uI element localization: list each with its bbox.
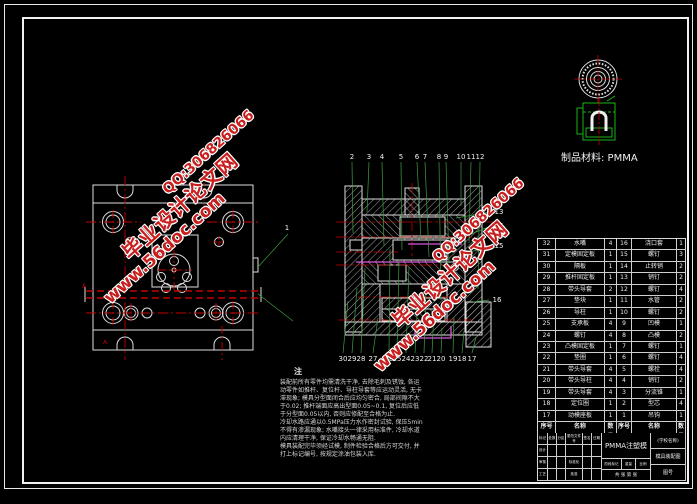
bom-cell: 13 (617, 273, 632, 284)
bom-cell: 22 (538, 353, 556, 364)
bom-cell: 25 (538, 319, 556, 330)
bom-cell: 28 (538, 285, 556, 296)
part-number-label: 30 (339, 355, 348, 363)
bom-cell: 32 (538, 239, 556, 250)
note-line: 于分型面0.05以内, 否则应修配至合格为止. (280, 411, 432, 419)
school-name-cell: (学校名称) (651, 433, 686, 449)
bom-cell: 4 (677, 399, 685, 410)
bom-cell: 4 (677, 285, 685, 296)
bom-cell: 凸模 (632, 331, 677, 342)
bom-cell: 11 (617, 296, 632, 307)
scale-cell: 比例 (636, 459, 651, 470)
revision-grid-cell (557, 457, 566, 469)
bom-cell: 支承板 (556, 319, 605, 330)
bom-cell: 销钉 (632, 273, 677, 284)
bom-cell: 型芯 (632, 399, 677, 410)
bom-cell: 19 (538, 388, 556, 399)
notes-title: 注 (294, 366, 432, 377)
bom-cell: 2 (605, 285, 617, 296)
bom-cell: 1 (605, 411, 617, 422)
part-number-label: A (103, 339, 108, 346)
revision-grid-cell: 更改文件号 (566, 433, 583, 445)
leader-line (258, 234, 288, 267)
bom-row: 30隔板114止转销2 (538, 262, 685, 273)
revision-grid-cell (592, 457, 602, 469)
part-number-label: 15 (495, 242, 504, 250)
bom-row: 25支承板49凹模1 (538, 319, 685, 330)
bill-of-materials-table: 32水嘴416浇口套131定模固定板115螺钉330隔板114止转销229推杆固… (537, 238, 686, 435)
part-number-label: 9 (444, 153, 448, 161)
revision-grid-cell: 分区 (557, 433, 566, 445)
drawing-number-cell: 图号 (651, 465, 686, 481)
bom-cell: 带头导套 (556, 388, 605, 399)
bom-cell: 24 (538, 331, 556, 342)
bom-cell: 4 (605, 376, 617, 387)
sheet-info-cell: 共 张 第 张 (602, 470, 651, 481)
bom-cell: 2 (677, 331, 685, 342)
cad-drawing-sheet: 2345678910111230292827262524232221201918… (0, 0, 697, 504)
revision-grid-cell: 日期 (592, 433, 602, 445)
bom-cell: 2 (677, 308, 685, 319)
bom-cell: 15 (617, 250, 632, 261)
bom-row: 24螺钉48凸模2 (538, 331, 685, 342)
bom-cell: 凸模固定板 (556, 342, 605, 353)
note-line: 滞现象; 模具分型面闭合后应均匀密合, 局部间隙不大 (280, 395, 432, 403)
revision-grid-cell (548, 445, 557, 457)
bom-cell: 凹模 (632, 319, 677, 330)
bom-row: 31定模固定板115螺钉3 (538, 250, 685, 261)
bom-cell: 1 (677, 388, 685, 399)
bom-cell: 4 (605, 319, 617, 330)
bom-cell: 4 (677, 353, 685, 364)
bom-cell: 30 (538, 262, 556, 273)
bom-cell: 2 (677, 273, 685, 284)
bom-row: 29推杆固定板113销钉2 (538, 273, 685, 284)
product-part-detail (577, 96, 615, 140)
bom-cell: 1 (605, 262, 617, 273)
bom-cell: 31 (538, 250, 556, 261)
bom-cell: 5 (617, 365, 632, 376)
bom-cell: 10 (617, 308, 632, 319)
bom-cell: 21 (538, 365, 556, 376)
part-number-label: 14 (495, 222, 504, 230)
plan-view-centerlines (86, 172, 260, 360)
bom-cell: 水管 (632, 296, 677, 307)
part-number-label: 25 (393, 355, 402, 363)
bom-cell: 止转销 (632, 262, 677, 273)
bom-cell: 23 (538, 342, 556, 353)
leader-line (258, 294, 293, 321)
bom-cell: 导柱 (556, 308, 605, 319)
bom-cell: 浇口套 (632, 239, 677, 250)
part-number-label: 13 (495, 208, 504, 216)
bom-row: 26导柱110螺钉2 (538, 308, 685, 319)
note-line: 打上标记编号, 按规定涂油包装入库. (280, 451, 432, 459)
revision-grid-cell: 批准 (566, 469, 583, 481)
revision-grid-cell (592, 445, 602, 457)
bom-cell: 4 (617, 376, 632, 387)
note-line: 模具装配完毕须经试模, 制件检验合格后方可交付, 并 (280, 443, 432, 451)
part-number-label: 4 (380, 153, 385, 161)
note-line: 不得有渗漏现象; 水嘴接头一律采用标准件, 冷却水道 (280, 427, 432, 435)
part-number-label: 8 (437, 153, 441, 161)
bom-cell: 4 (677, 365, 685, 376)
bom-cell: 螺钉 (632, 285, 677, 296)
bom-cell: 螺钉 (632, 308, 677, 319)
bom-cell: 1 (605, 399, 617, 410)
revision-grid-cell (557, 445, 566, 457)
note-line: 内应清理干净, 保证冷却水畅通无阻. (280, 435, 432, 443)
bom-cell: 12 (617, 285, 632, 296)
bom-cell: 14 (617, 262, 632, 273)
part-number-label: 19 (449, 355, 458, 363)
bom-cell: 隔板 (556, 262, 605, 273)
bom-cell: 螺栓 (632, 365, 677, 376)
part-number-label: 23 (411, 355, 420, 363)
bom-cell: 螺钉 (556, 331, 605, 342)
bom-cell: 1 (605, 342, 617, 353)
bom-cell: 推杆固定板 (556, 273, 605, 284)
weight-cell: 重量 (622, 459, 636, 470)
bom-row: 20带头导柱44销钉2 (538, 376, 685, 387)
bom-cell: 3 (617, 388, 632, 399)
revision-grid-cell: 处数 (548, 433, 557, 445)
part-number-label: 29 (348, 355, 357, 363)
bom-cell: 1 (605, 296, 617, 307)
revision-grid-cell (583, 457, 592, 469)
bom-cell: 1 (677, 411, 685, 422)
bom-row: 28带头导套212螺钉4 (538, 285, 685, 296)
bom-cell: 4 (605, 388, 617, 399)
note-line: 装配前所有零件均需清洗干净, 去除毛刺及锈蚀, 各运 (280, 379, 432, 387)
part-number-label: 18 (458, 355, 467, 363)
bom-cell: 垫块 (556, 296, 605, 307)
revision-grid-cell: 工艺 (538, 469, 548, 481)
bom-cell: 18 (538, 399, 556, 410)
bom-cell: 2 (677, 376, 685, 387)
bom-cell: 螺钉 (632, 250, 677, 261)
bom-row: 27垫块111水管2 (538, 296, 685, 307)
bom-cell: 17 (538, 411, 556, 422)
part-number-label: 16 (493, 296, 502, 304)
bom-cell: 1 (677, 342, 685, 353)
revision-grid-cell: 设计 (538, 445, 548, 457)
part-number-label: A (82, 283, 87, 290)
revision-grid-cell (583, 469, 592, 481)
bom-cell: 分流锥 (632, 388, 677, 399)
part-number-label: 17 (468, 355, 477, 363)
bom-row: 32水嘴416浇口套1 (538, 239, 685, 250)
bom-cell: 9 (617, 319, 632, 330)
bom-cell: 螺钉 (632, 353, 677, 364)
bom-row: 22垫圈16螺钉4 (538, 353, 685, 364)
plan-view (85, 185, 261, 350)
drawing-title-cell: PMMA注塑模 (602, 433, 651, 459)
bom-cell: 1 (605, 308, 617, 319)
bom-cell: 16 (617, 239, 632, 250)
bom-cell: 2 (677, 262, 685, 273)
part-number-label: 7 (423, 153, 427, 161)
revision-grid-cell: 签名 (583, 433, 592, 445)
bom-cell: 4 (605, 239, 617, 250)
part-number-label: 12 (476, 153, 485, 161)
bom-cell: 29 (538, 273, 556, 284)
bom-cell: 26 (538, 308, 556, 319)
bom-cell: 6 (617, 353, 632, 364)
bom-row: 21带头导套45螺栓4 (538, 365, 685, 376)
part-number-label: 27 (369, 355, 378, 363)
bom-cell: 1 (677, 239, 685, 250)
part-number-label: 5 (399, 153, 403, 161)
bom-cell: 带头导套 (556, 365, 605, 376)
part-number-label: 3 (367, 153, 371, 161)
revision-grid-cell (557, 469, 566, 481)
technical-notes: 注 装配前所有零件均需清洗干净, 去除毛刺及锈蚀, 各运动零件如推杆、复位杆、导… (280, 366, 432, 459)
bom-cell: 3 (677, 250, 685, 261)
note-line: 于0.02; 推杆端面应高出型面0.05~0.1, 复位后应低 (280, 403, 432, 411)
bom-cell: 7 (617, 342, 632, 353)
bom-cell: 4 (605, 365, 617, 376)
bom-row: 19带头导套43分流锥1 (538, 388, 685, 399)
bom-cell: 1 (605, 353, 617, 364)
drawing-name-cell: 模具装配图 (651, 449, 686, 465)
revision-grid-cell (566, 445, 583, 457)
bom-row: 17动模座板11吊钩1 (538, 411, 685, 422)
part-number-label: 20 (437, 355, 446, 363)
bom-cell: 动模座板 (556, 411, 605, 422)
revision-grid-cell: 审核 (538, 457, 548, 469)
bom-row: 18定位圈12型芯4 (538, 399, 685, 410)
bom-cell: 8 (617, 331, 632, 342)
part-number-label: 2 (350, 153, 354, 161)
bom-cell: 4 (605, 331, 617, 342)
note-line: 冷却水路应通以0.5MPa压力水作密封试验, 保压5min (280, 419, 432, 427)
title-block: 标记设计审核工艺处数分区更改文件号标准化批准签名日期PMMA注塑模阶段标记重量比… (537, 433, 686, 481)
revision-grid-cell (583, 445, 592, 457)
part-number-label: 1 (285, 224, 289, 232)
note-line: 动零件如推杆、复位杆、导柱导套等应运动灵活, 无卡 (280, 387, 432, 395)
revision-grid-cell: 标准化 (566, 457, 583, 469)
part-number-label: 21 (428, 355, 437, 363)
part-number-label: 28 (357, 355, 366, 363)
bom-cell: 垫圈 (556, 353, 605, 364)
bom-cell: 带头导柱 (556, 376, 605, 387)
stage-mark-cell: 阶段标记 (602, 459, 622, 470)
bom-cell: 1 (605, 250, 617, 261)
revision-grid-cell (592, 469, 602, 481)
bom-row: 23凸模固定板17螺钉1 (538, 342, 685, 353)
bom-cell: 27 (538, 296, 556, 307)
bom-cell: 水嘴 (556, 239, 605, 250)
bom-cell: 螺钉 (632, 342, 677, 353)
bom-cell: 定模固定板 (556, 250, 605, 261)
part-number-label: 11 (467, 153, 476, 161)
revision-grid-cell (548, 457, 557, 469)
part-number-label: 6 (415, 153, 420, 161)
bom-cell: 吊钩 (632, 411, 677, 422)
notes-lines: 装配前所有零件均需清洗干净, 去除毛刺及锈蚀, 各运动零件如推杆、复位杆、导柱导… (280, 379, 432, 459)
bom-cell: 销钉 (632, 376, 677, 387)
bom-cell: 20 (538, 376, 556, 387)
bom-cell: 2 (617, 399, 632, 410)
product-material-label: 制品材料: PMMA (561, 149, 638, 164)
bom-cell: 带头导套 (556, 285, 605, 296)
revision-grid-cell (548, 469, 557, 481)
bom-cell: 定位圈 (556, 399, 605, 410)
revision-grid-cell: 标记 (538, 433, 548, 445)
bom-cell: 2 (677, 296, 685, 307)
bom-cell: 1 (617, 411, 632, 422)
part-number-label: 10 (457, 153, 466, 161)
bom-cell: 1 (605, 273, 617, 284)
bom-cell: 1 (677, 319, 685, 330)
